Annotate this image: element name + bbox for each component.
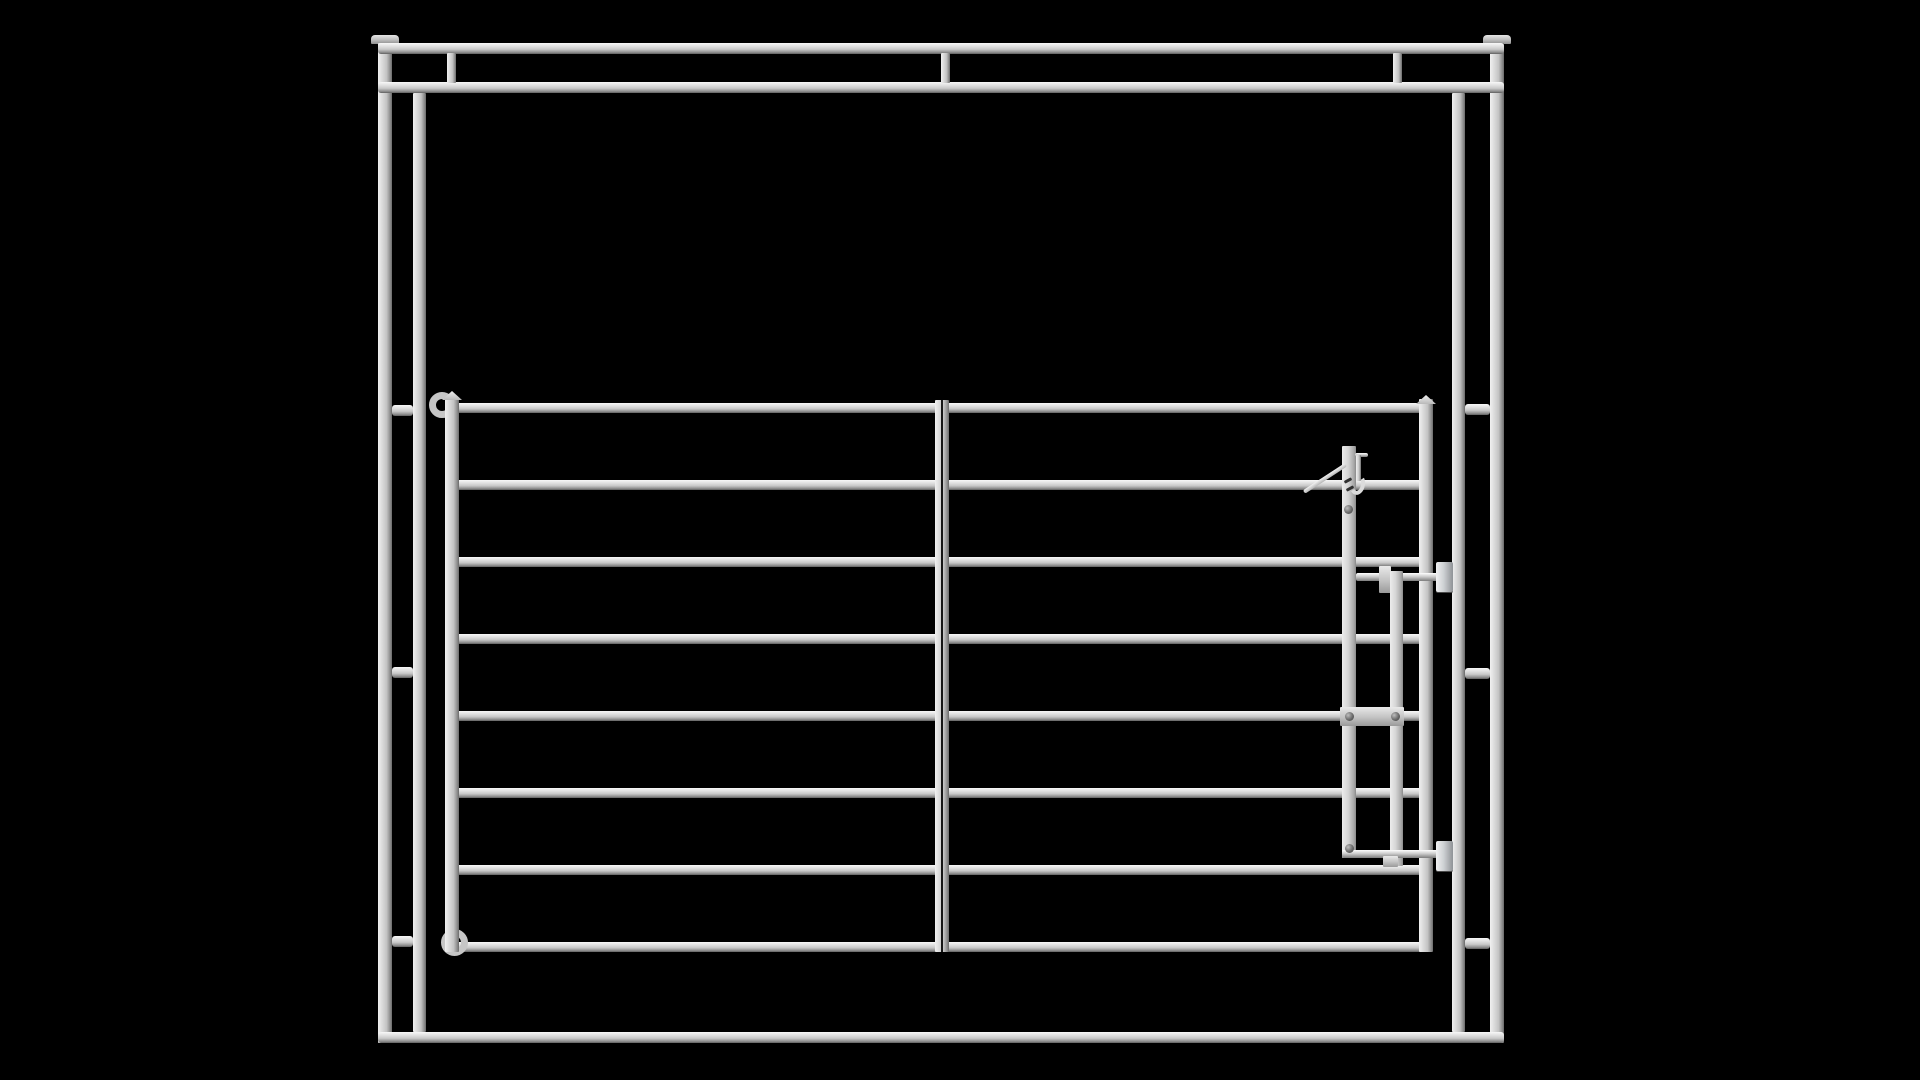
top-band-connector-right [1393,53,1402,83]
gate-stile-left [445,399,459,952]
top-band-connector-center [941,53,950,83]
frame-bottom-rail [378,1032,1504,1043]
outer-post-right [1490,43,1504,1043]
latch-pivot-bolt [1344,505,1353,514]
stub-connector-right-bottom [1465,938,1490,949]
stub-connector-right-mid [1465,668,1490,679]
latch-lower-keeper [1436,841,1453,871]
stub-connector-left-top [392,405,413,416]
outer-post-left [378,43,392,1043]
stub-connector-left-bottom [392,936,413,947]
gate-center-seam [941,400,943,952]
frame-second-rail [378,82,1504,93]
stub-connector-left-mid [392,667,413,678]
latch-lower-bolt [1345,844,1354,853]
gate-stile-right [1419,399,1433,952]
latch-link-bolt-right [1391,712,1400,721]
latch-bottom-tab [1383,856,1398,867]
top-band-connector-left [447,53,456,83]
inner-post-right [1452,93,1465,1032]
stub-connector-right-top [1465,404,1490,415]
inner-post-left [413,93,426,1032]
latch-upper-keeper [1436,562,1453,592]
gate-panel-render [0,0,1920,1080]
latch-link-bolt-left [1345,712,1354,721]
